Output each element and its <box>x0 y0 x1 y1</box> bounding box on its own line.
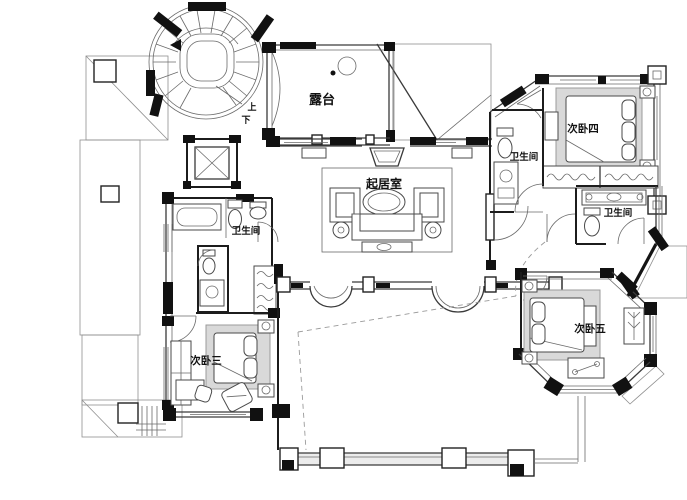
stair-up-label: 上 <box>247 101 256 112</box>
door-arc <box>515 184 543 212</box>
vanity-icon <box>494 162 518 204</box>
bedroom-three: 次卧三 <box>162 308 280 421</box>
bedroom-four-label: 次卧四 <box>567 122 599 135</box>
side-table-icon <box>425 222 441 238</box>
pier <box>485 277 496 292</box>
misc-lines <box>136 424 166 430</box>
sink-icon <box>250 202 266 219</box>
roof-column-base <box>94 60 116 82</box>
door-arc <box>618 218 644 244</box>
corner-column <box>648 66 666 84</box>
toilet-icon <box>228 200 242 229</box>
oval-table-icon <box>363 189 405 215</box>
toilet-icon <box>203 250 215 274</box>
stair-eye <box>180 34 234 88</box>
vanity-icon <box>200 280 224 306</box>
plant-stand-icon <box>624 308 644 344</box>
bathroom-top-right-label: 卫生间 <box>510 151 539 163</box>
roof-column-base <box>118 403 138 423</box>
pillow <box>244 336 257 356</box>
wc-left <box>198 246 228 312</box>
nightstand-icon <box>522 280 537 292</box>
pillow <box>244 358 257 378</box>
window-sash <box>452 148 472 158</box>
balcony-railing <box>280 448 534 476</box>
pillow <box>622 100 635 120</box>
void-dashed-outline <box>298 332 306 450</box>
bathtub-icon <box>173 204 221 230</box>
nightstand-icon <box>640 86 655 98</box>
bathroom-top-right: 卫生间 <box>490 110 543 212</box>
roof-dot <box>331 71 336 76</box>
stair-tower-walls <box>146 2 274 117</box>
side-table-icon <box>333 222 349 238</box>
pillow <box>622 122 635 142</box>
pier <box>277 277 290 292</box>
nightstand-icon <box>258 384 274 397</box>
terrace: 露台 <box>262 42 395 145</box>
door-leaf <box>486 194 494 240</box>
roof-right-of-terrace <box>394 44 491 140</box>
roof-bottom-left <box>82 335 138 405</box>
bedroom-three-label: 次卧三 <box>190 354 222 367</box>
roof-finial <box>338 57 356 75</box>
bedroom-five-label: 次卧五 <box>574 322 606 335</box>
pillow <box>622 144 635 160</box>
arch-scallop <box>310 286 352 307</box>
window-sash <box>302 148 326 158</box>
bay-window <box>544 377 633 397</box>
corner-column <box>648 196 666 214</box>
railing-pilaster <box>320 448 344 468</box>
sofa-icon <box>352 214 422 240</box>
roof-column-base <box>101 186 119 202</box>
railing-pilaster <box>442 448 466 468</box>
pillow <box>532 324 545 344</box>
elevator <box>183 135 241 189</box>
living-room-label: 起居室 <box>365 176 402 191</box>
stair-direction-arrow <box>174 28 238 44</box>
exterior-steps <box>142 406 157 436</box>
dressing-table-icon <box>568 358 604 378</box>
vanity-icon <box>582 190 646 205</box>
terrace-railing <box>269 135 390 145</box>
bathroom-right-label: 卫生间 <box>604 207 633 219</box>
tower-edge-curve <box>272 52 280 126</box>
roof-left-band <box>80 140 140 335</box>
void-dashed-outline <box>298 296 516 332</box>
living-room: 起居室 <box>322 168 452 252</box>
entry-step <box>370 148 404 166</box>
spiral-staircase: 上 下 <box>146 2 274 125</box>
arched-colonnade <box>277 277 562 312</box>
toilet-icon <box>584 208 600 236</box>
door-arc <box>258 222 278 242</box>
floor-plan-canvas: 上 下 露台 <box>0 0 687 500</box>
cabinet-icon <box>545 112 558 140</box>
main-top-wall <box>266 136 492 166</box>
stair-down-label: 下 <box>241 115 250 125</box>
floor-plan-drawing: 上 下 露台 <box>0 0 687 500</box>
pillow <box>532 302 545 322</box>
nightstand-icon <box>258 320 274 333</box>
bathroom-left-label: 卫生间 <box>232 225 261 237</box>
terrace-label: 露台 <box>309 92 335 107</box>
linen-closet <box>254 266 276 314</box>
nightstand-icon <box>522 352 537 364</box>
stair-arrowhead-icon <box>170 39 181 51</box>
pier <box>363 277 374 292</box>
media-table-icon <box>362 242 412 252</box>
bedroom-five: 次卧五 <box>513 268 657 396</box>
wardrobe-icon <box>543 166 658 188</box>
window-bar <box>163 282 173 314</box>
door-arc <box>547 214 575 242</box>
corridor-right <box>547 188 576 244</box>
